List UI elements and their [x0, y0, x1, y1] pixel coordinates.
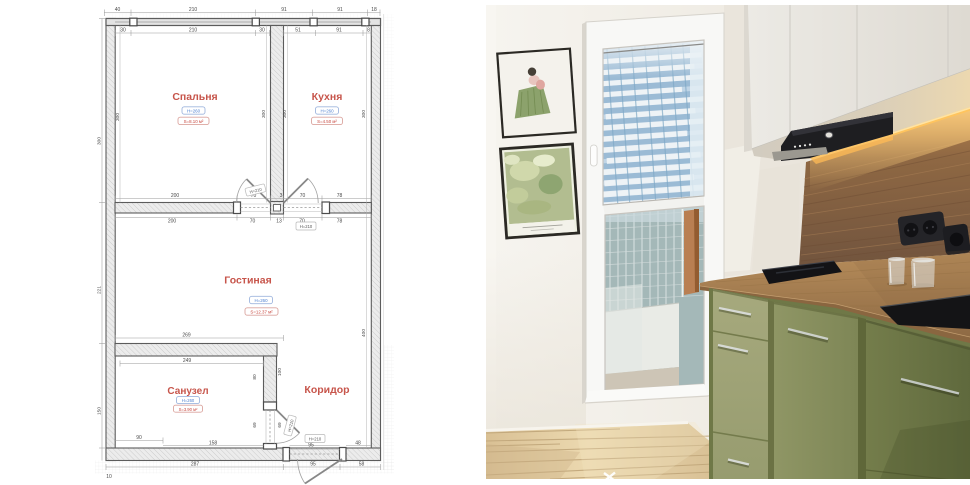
svg-text:210: 210 — [189, 28, 198, 34]
svg-text:70: 70 — [300, 193, 306, 199]
svg-text:221: 221 — [97, 286, 103, 294]
svg-text:70: 70 — [250, 219, 256, 225]
svg-text:91: 91 — [336, 28, 342, 34]
svg-text:95: 95 — [308, 443, 314, 449]
svg-text:3: 3 — [280, 193, 283, 199]
svg-text:91: 91 — [337, 7, 343, 13]
svg-text:200: 200 — [171, 193, 180, 199]
svg-text:18: 18 — [371, 7, 377, 13]
svg-text:Коридор: Коридор — [304, 384, 349, 396]
svg-text:H=210: H=210 — [309, 437, 322, 442]
svg-text:30: 30 — [120, 28, 126, 34]
svg-text:S=3.90 м²: S=3.90 м² — [179, 407, 198, 412]
svg-text:249: 249 — [183, 358, 192, 364]
svg-text:51: 51 — [295, 28, 301, 34]
svg-text:287: 287 — [191, 462, 200, 468]
svg-text:150: 150 — [97, 407, 103, 415]
svg-text:S=8.10 м²: S=8.10 м² — [184, 119, 204, 124]
svg-text:Кухня: Кухня — [312, 91, 343, 103]
svg-text:78: 78 — [337, 193, 343, 199]
svg-text:158: 158 — [209, 441, 218, 447]
svg-text:269: 269 — [182, 333, 191, 339]
svg-text:91: 91 — [281, 7, 287, 13]
svg-text:300: 300 — [261, 110, 267, 118]
svg-text:Гостиная: Гостиная — [224, 275, 271, 287]
svg-text:S=4.50 м²: S=4.50 м² — [317, 119, 337, 124]
svg-text:10: 10 — [106, 474, 112, 480]
svg-text:Спальня: Спальня — [172, 91, 217, 103]
svg-text:8: 8 — [367, 28, 370, 34]
svg-text:40: 40 — [115, 7, 121, 13]
svg-text:69: 69 — [277, 422, 283, 428]
svg-text:300: 300 — [97, 137, 103, 145]
svg-text:300: 300 — [115, 113, 121, 121]
svg-text:400: 400 — [361, 329, 367, 337]
svg-text:H=260: H=260 — [182, 398, 195, 403]
svg-text:H=260: H=260 — [187, 109, 201, 114]
svg-text:13: 13 — [276, 219, 282, 225]
svg-text:210: 210 — [189, 7, 198, 13]
svg-text:200: 200 — [168, 219, 177, 225]
svg-text:78: 78 — [337, 219, 343, 225]
svg-text:S=12.37 м²: S=12.37 м² — [250, 310, 273, 315]
svg-text:H=260: H=260 — [254, 298, 268, 303]
svg-text:300: 300 — [361, 110, 367, 118]
svg-text:100: 100 — [277, 368, 283, 376]
svg-text:30: 30 — [259, 28, 265, 34]
svg-text:H=210: H=210 — [300, 224, 313, 229]
svg-text:H=260: H=260 — [320, 109, 334, 114]
svg-text:90: 90 — [136, 435, 142, 441]
svg-text:69: 69 — [252, 422, 258, 428]
svg-text:80: 80 — [252, 374, 258, 380]
svg-text:Санузел: Санузел — [167, 386, 208, 397]
svg-text:300: 300 — [282, 110, 288, 118]
svg-text:58: 58 — [359, 462, 365, 468]
svg-text:95: 95 — [310, 462, 316, 468]
svg-text:48: 48 — [355, 441, 361, 447]
